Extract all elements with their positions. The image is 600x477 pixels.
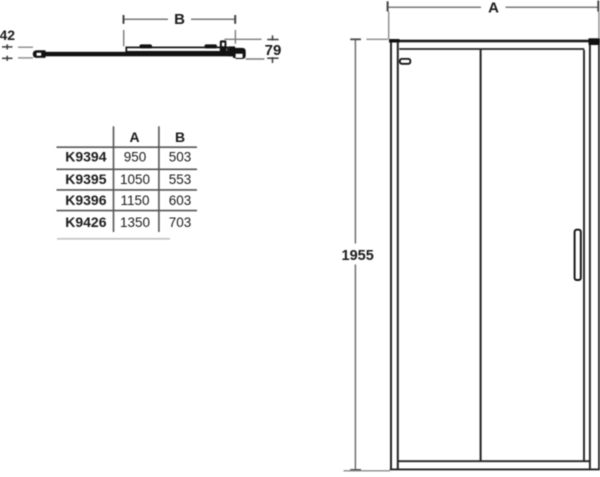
svg-text:1150: 1150 (120, 193, 149, 208)
svg-text:A: A (129, 129, 139, 145)
svg-text:42: 42 (0, 27, 15, 43)
svg-text:K9396: K9396 (65, 192, 106, 208)
svg-text:K9394: K9394 (65, 149, 106, 165)
svg-text:K9395: K9395 (65, 171, 106, 187)
svg-text:1955: 1955 (342, 248, 374, 264)
svg-text:1350: 1350 (120, 215, 150, 230)
svg-text:603: 603 (169, 193, 192, 208)
svg-text:1050: 1050 (120, 172, 150, 187)
svg-text:A: A (488, 0, 499, 17)
svg-text:B: B (175, 129, 185, 145)
svg-text:553: 553 (169, 172, 192, 187)
svg-text:703: 703 (169, 215, 192, 230)
svg-text:B: B (174, 11, 185, 28)
svg-text:79: 79 (265, 42, 282, 59)
svg-text:503: 503 (169, 150, 192, 165)
svg-text:K9426: K9426 (65, 214, 106, 230)
svg-text:950: 950 (124, 150, 147, 165)
